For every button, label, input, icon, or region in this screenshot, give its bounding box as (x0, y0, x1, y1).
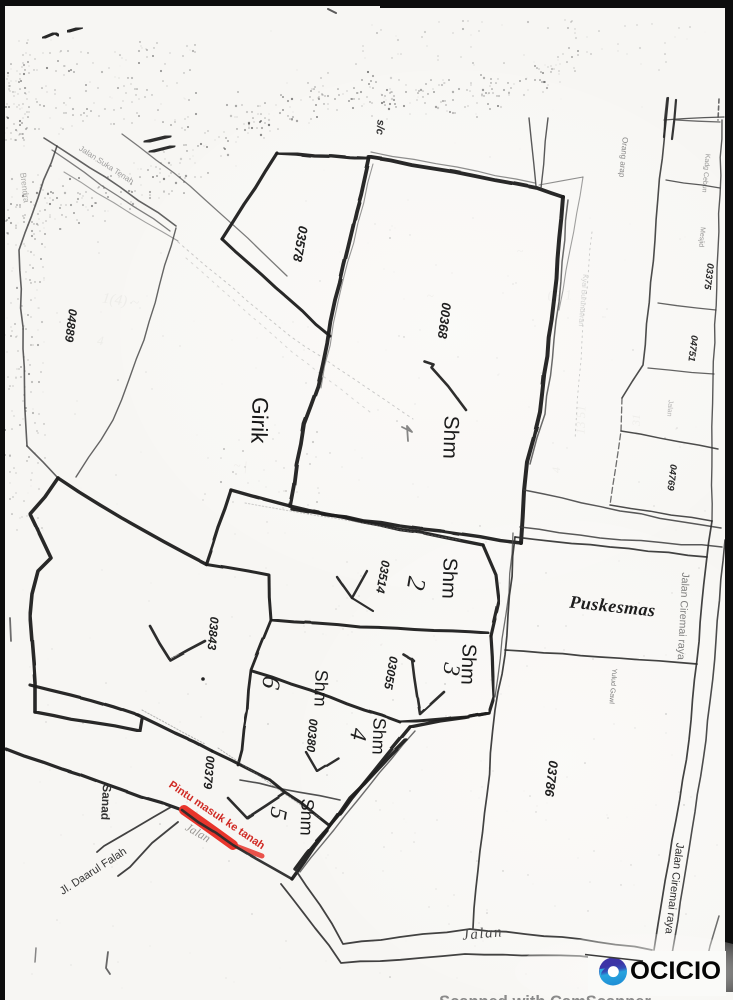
svg-text:00380: 00380 (304, 718, 321, 753)
svg-text:Shm: Shm (296, 798, 317, 836)
svg-text:Girik: Girik (246, 397, 273, 445)
svg-text:Scanned with CamScanner: Scanned with CamScanner (439, 993, 651, 1000)
svg-text:13 51: 13 51 (572, 405, 588, 435)
svg-text:Shm: Shm (438, 415, 462, 459)
svg-text:4: 4 (549, 467, 563, 473)
svg-text:OCICIO: OCICIO (630, 957, 721, 985)
svg-text:~: ~ (426, 288, 434, 303)
svg-text:~ |: ~ | (233, 457, 248, 473)
svg-text:s/c: s/c (373, 119, 386, 135)
svg-text:31: 31 (629, 414, 643, 427)
svg-text:00379: 00379 (201, 755, 218, 790)
svg-text:Jalan: Jalan (665, 399, 673, 416)
svg-text:~: ~ (517, 244, 524, 258)
svg-text:Shm: Shm (437, 557, 460, 599)
svg-text:Shm: Shm (310, 669, 331, 707)
svg-text:Sanad: Sanad (98, 784, 114, 821)
svg-text:03843: 03843 (205, 616, 222, 651)
